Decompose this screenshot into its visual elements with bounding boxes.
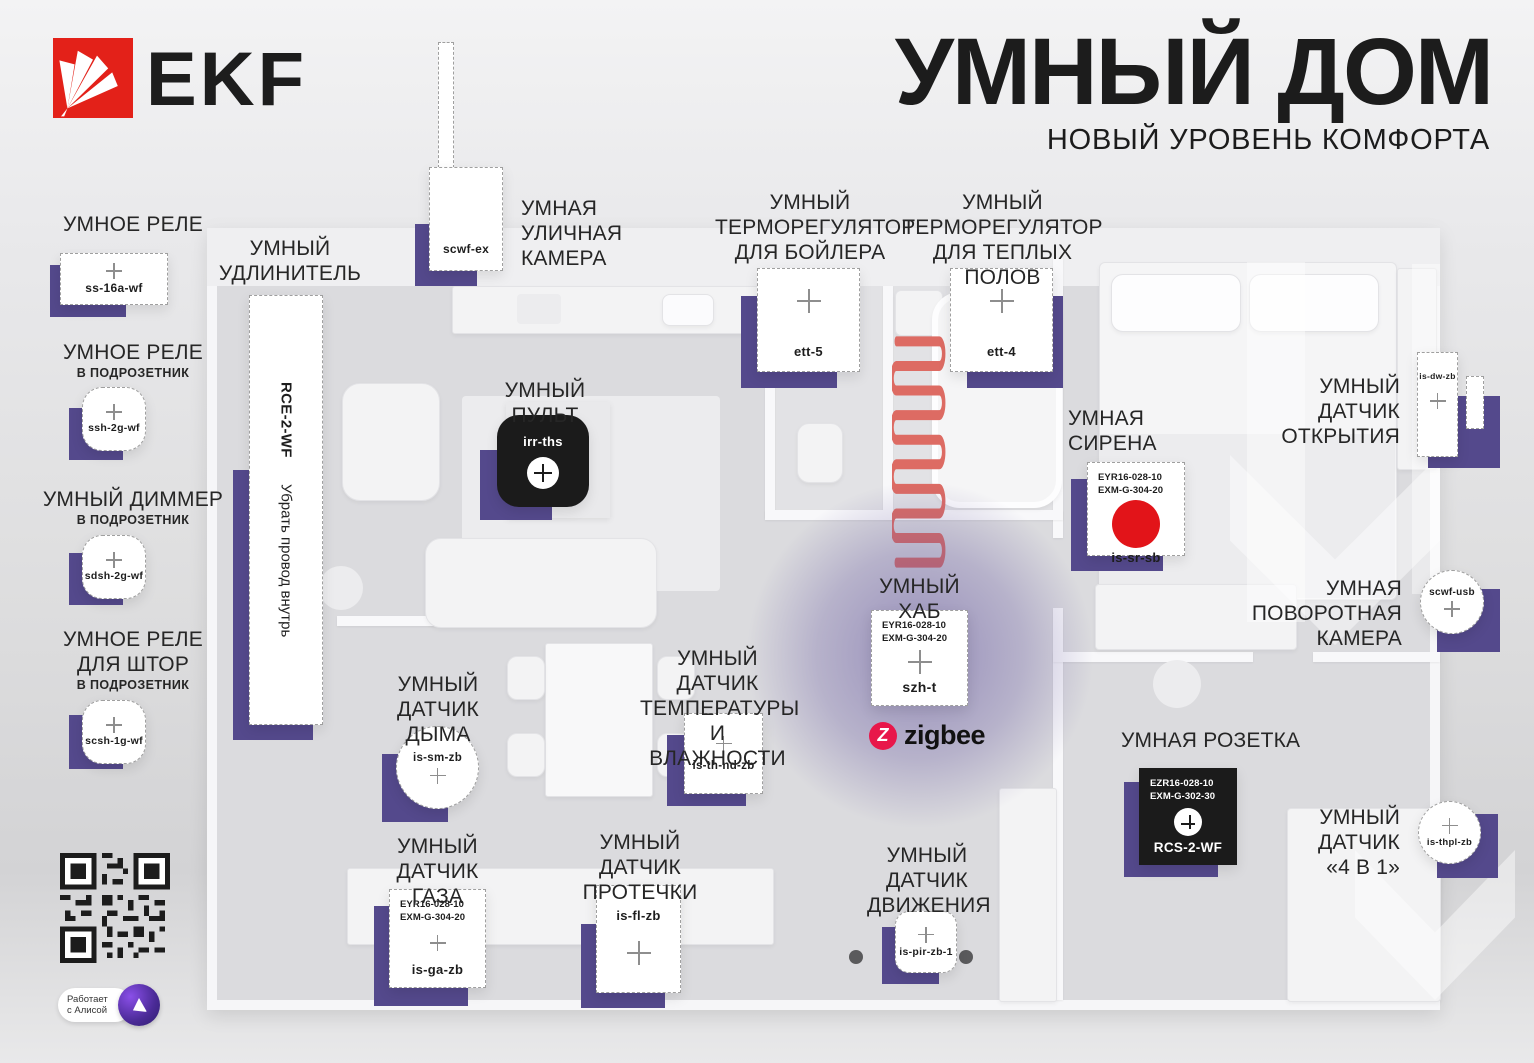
label-hub: УМНЫЙ ХАБ bbox=[862, 574, 977, 624]
plus-icon bbox=[527, 457, 559, 489]
kitchen-sink bbox=[662, 294, 714, 326]
device-card-ss-16a-wf: ss-16a-wf bbox=[60, 253, 168, 305]
sidebar-item-relay-flush: УМНОЕ РЕЛЕ В ПОДРОЗЕТНИК bbox=[38, 340, 228, 381]
kitchen-counter bbox=[452, 286, 772, 334]
plus-icon bbox=[106, 552, 122, 568]
label-extension: УМНЫЙ УДЛИНИТЕЛЬ bbox=[210, 236, 370, 286]
plus-icon bbox=[106, 404, 122, 420]
plus-icon bbox=[627, 941, 651, 965]
sidebar-item-relay: УМНОЕ РЕЛЕ bbox=[38, 212, 228, 237]
device-card-is-sr-sb: EYR16-028-10 EXM-G-304-20 is-sr-sb bbox=[1087, 462, 1185, 556]
device-card-ett-5: ett-5 bbox=[757, 268, 860, 372]
plus-icon bbox=[1444, 601, 1460, 617]
label-multi-sensor: УМНЫЙ ДАТЧИК «4 В 1» bbox=[1255, 805, 1400, 880]
qr-code bbox=[60, 853, 170, 963]
device-card-rcs-2-wf: EZR16-028-10 EXM-G-302-30 RCS-2-WF bbox=[1139, 768, 1237, 865]
plant bbox=[319, 566, 363, 610]
siren-red-circle bbox=[1112, 500, 1160, 548]
plus-icon bbox=[430, 935, 446, 951]
device-card-is-dw-zb: is-dw-zb bbox=[1417, 352, 1458, 457]
device-card-is-pir-zb-1: is-pir-zb-1 bbox=[895, 911, 957, 973]
device-card-irr-ths: irr-ths bbox=[497, 415, 589, 507]
device-card-szh-t: EYR16-028-10 EXM-G-304-20 szh-t bbox=[871, 610, 968, 706]
plus-icon bbox=[1430, 393, 1446, 409]
plus-icon bbox=[1174, 808, 1202, 836]
wall bbox=[1313, 652, 1440, 662]
plus-icon bbox=[106, 717, 122, 733]
pillow bbox=[1111, 274, 1241, 332]
plus-icon bbox=[106, 263, 122, 279]
camera-antenna bbox=[438, 42, 454, 168]
zigbee-icon: Z bbox=[869, 722, 897, 750]
plus-icon bbox=[1442, 818, 1458, 834]
plus-icon bbox=[797, 289, 821, 313]
dining-table bbox=[545, 643, 653, 797]
label-floor-thermostat: УМНЫЙ ТЕРМОРЕГУЛЯТОР ДЛЯ ТЕПЛЫХ ПОЛОВ bbox=[900, 190, 1105, 290]
sidebar-item-curtain-relay: УМНОЕ РЕЛЕ ДЛЯ ШТОР В ПОДРОЗЕТНИК bbox=[38, 627, 228, 693]
label-leak-sensor: УМНЫЙ ДАТЧИК ПРОТЕЧКИ bbox=[550, 830, 730, 905]
stove bbox=[517, 294, 561, 324]
floor-knob bbox=[849, 950, 863, 964]
ekf-logo-icon bbox=[53, 38, 133, 118]
label-ptz-camera: УМНАЯ ПОВОРОТНАЯ КАМЕРА bbox=[1250, 576, 1402, 651]
label-gas-sensor: УМНЫЙ ДАТЧИК ГАЗА bbox=[370, 834, 505, 909]
device-card-scwf-ex: scwf-ex bbox=[429, 167, 503, 271]
part-numbers: EZR16-028-10 EXM-G-302-30 bbox=[1150, 777, 1215, 804]
plus-icon bbox=[918, 927, 934, 943]
part-numbers: EYR16-028-10 EXM-G-304-20 bbox=[1098, 471, 1163, 498]
sidebar-item-dimmer: УМНЫЙ ДИММЕР В ПОДРОЗЕТНИК bbox=[38, 487, 228, 528]
device-card-scwf-usb: scwf-usb bbox=[1420, 570, 1484, 634]
page-subtitle: НОВЫЙ УРОВЕНЬ КОМФОРТА bbox=[1047, 124, 1490, 157]
label-door-sensor: УМНЫЙ ДАТЧИК ОТКРЫТИЯ bbox=[1255, 374, 1400, 449]
ekf-logo-text: EKF bbox=[146, 36, 307, 123]
floor-knob bbox=[959, 950, 973, 964]
alice-icon bbox=[118, 984, 160, 1026]
armchair bbox=[342, 383, 440, 501]
label-temp-sensor: УМНЫЙ ДАТЧИК ТЕМПЕРАТУРЫ И ВЛАЖНОСТИ bbox=[640, 646, 795, 771]
label-siren: УМНАЯ СИРЕНА bbox=[1068, 406, 1157, 456]
desk-chair bbox=[1153, 660, 1201, 708]
toilet bbox=[797, 423, 843, 483]
zigbee-logo: Z zigbee bbox=[869, 720, 985, 751]
device-card-scsh-1g-wf: scsh-1g-wf bbox=[82, 700, 146, 764]
device-card-sdsh-2g-wf: sdsh-2g-wf bbox=[82, 535, 146, 599]
door-sensor-magnet bbox=[1466, 376, 1484, 429]
label-socket: УМНАЯ РОЗЕТКА bbox=[1121, 728, 1300, 753]
label-outdoor-camera: УМНАЯ УЛИЧНАЯ КАМЕРА bbox=[521, 196, 622, 271]
sofa bbox=[425, 538, 657, 628]
label-motion-sensor: УМНЫЙ ДАТЧИК ДВИЖЕНИЯ bbox=[867, 843, 987, 918]
page-title: УМНЫЙ ДОМ bbox=[895, 18, 1492, 127]
label-remote: УМНЫЙ ПУЛЬТ bbox=[470, 378, 620, 428]
device-card-is-thpl-zb: is-thpl-zb bbox=[1418, 801, 1481, 864]
label-smoke-sensor: УМНЫЙ ДАТЧИК ДЫМА bbox=[363, 672, 513, 747]
device-card-rce-2-wf: RCE-2-WF Убрать провод внутрь bbox=[249, 295, 323, 725]
plus-icon bbox=[990, 289, 1014, 313]
plus-icon bbox=[908, 650, 932, 674]
label-boiler-thermostat: УМНЫЙ ТЕРМОРЕГУЛЯТОР ДЛЯ БОЙЛЕРА bbox=[715, 190, 905, 265]
device-card-ssh-2g-wf: ssh-2g-wf bbox=[82, 387, 146, 451]
plus-icon bbox=[430, 768, 446, 784]
ekf-fan-icon bbox=[53, 38, 133, 118]
poster-smart-home: EKF УМНЫЙ ДОМ НОВЫЙ УРОВЕНЬ КОМФОРТА bbox=[0, 0, 1534, 1063]
